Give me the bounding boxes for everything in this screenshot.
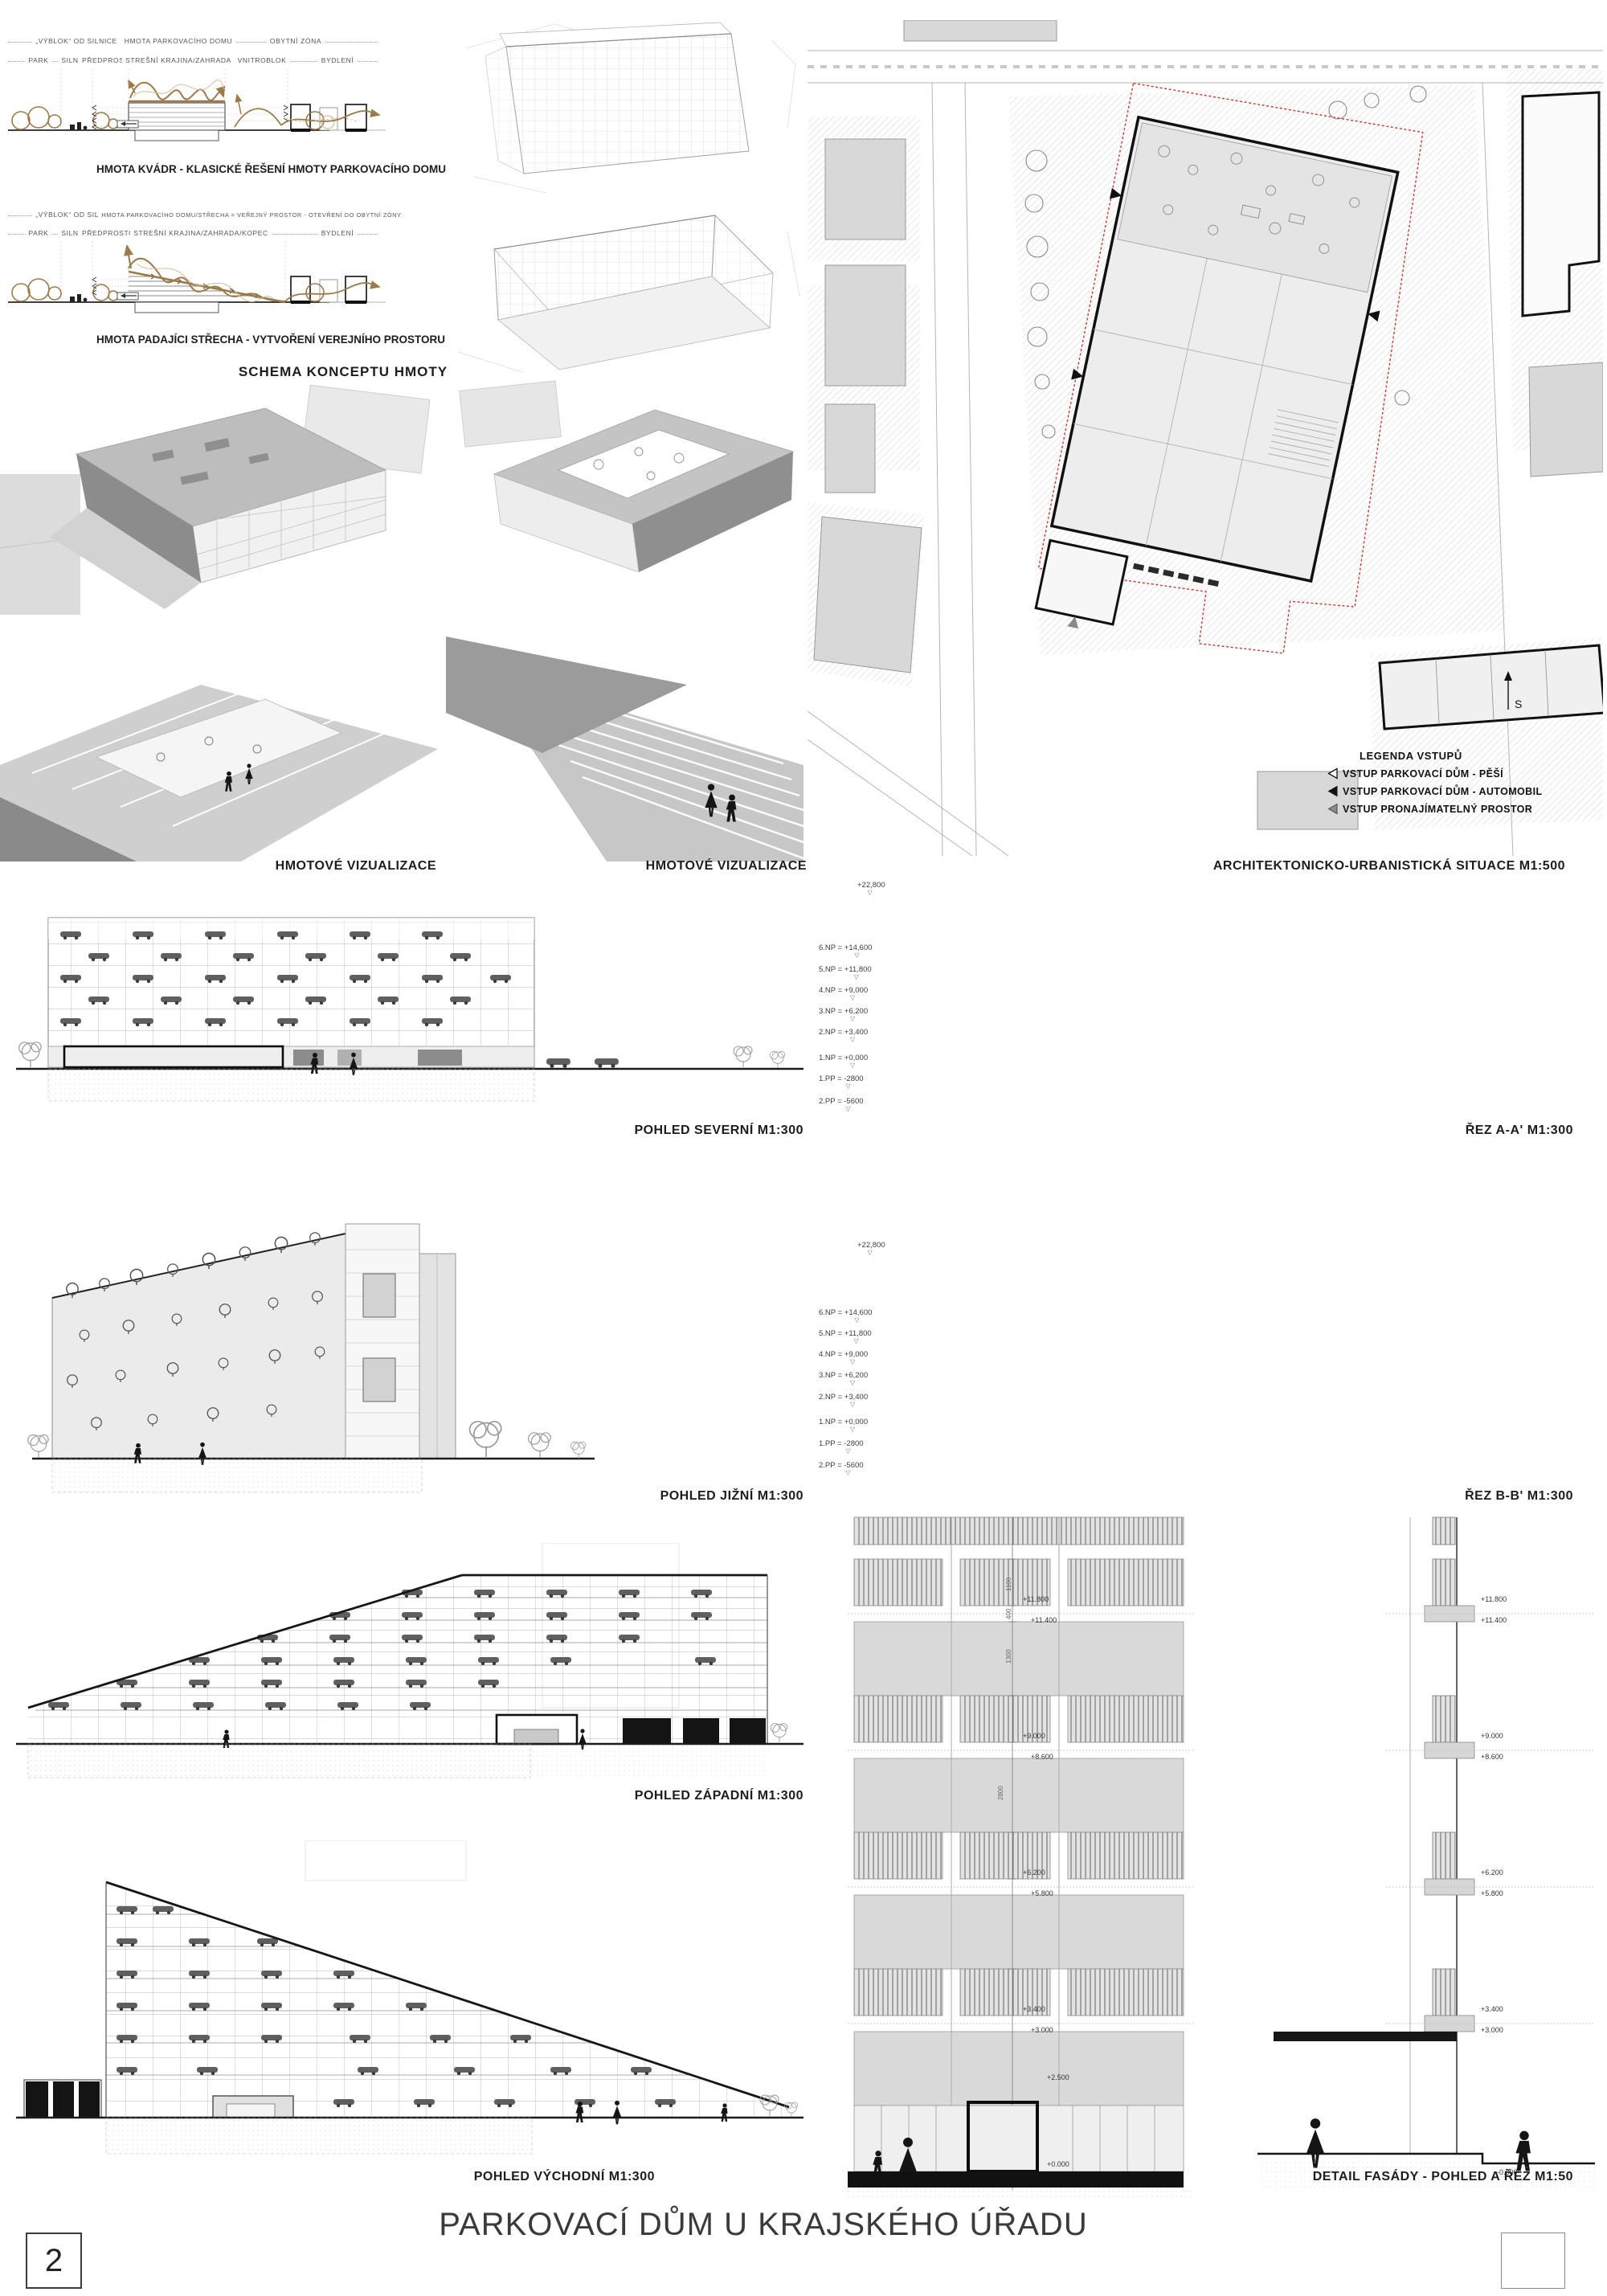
detail-section-drawing: [1241, 1511, 1603, 2202]
facade-dim-label: 400: [1005, 1609, 1012, 1619]
detail-section-level-label: +3.400: [1481, 2005, 1503, 2013]
entry-pedestrian-triangle-icon: [1327, 767, 1338, 780]
legend-item: VSTUP PRONAJÍMATELNÝ PROSTOR: [1327, 803, 1593, 815]
section-bb-drawing: [808, 1234, 1603, 1487]
detail-section-level-label: +8.600: [1481, 1753, 1503, 1761]
detail-facade-panel: +11.800 +11.400 +9.000 +8.600 +6.200 +5.…: [848, 1511, 1193, 2202]
concept-diagram-1: „VÝBLOK“ OD SILNICE HMOTA PARKOVACÍHO DO…: [0, 0, 450, 185]
siteplan-legend: LEGENDA VSTUPŮ VSTUP PARKOVACÍ DŮM - PĚŠ…: [1327, 750, 1593, 815]
caption-elevation-west: POHLED ZÁPADNÍ M1:300: [450, 1789, 803, 1803]
level-label: 5.NP = +11,800▽: [819, 966, 872, 981]
facade-dim-label: 2800: [997, 1786, 1004, 1800]
level-label: 4.NP = +9,000▽: [819, 987, 868, 1002]
legend-item: VSTUP PARKOVACÍ DŮM - PĚŠÍ: [1327, 767, 1593, 780]
level-label: 2.PP = -5600▽: [819, 1462, 864, 1477]
massing-render: [0, 636, 438, 862]
level-label: 2.NP = +3,400▽: [819, 1394, 868, 1409]
detail-facade-drawing: [848, 1511, 1193, 2202]
massing-visualization-3: [0, 636, 438, 862]
facade-level-label: +3.000: [1031, 2026, 1053, 2034]
zone-label: STREŠNÍ KRAJINA/ZAHRADA: [122, 56, 235, 64]
elevation-south-drawing: [16, 1177, 803, 1499]
entry-rentable-triangle-icon: [1327, 803, 1338, 815]
level-label: 4.NP = +9,000▽: [819, 1351, 868, 1366]
detail-section-level-label: +5.800: [1481, 1889, 1503, 1897]
siteplan-drawing: S: [808, 20, 1603, 856]
facade-level-label: +6.200: [1023, 1868, 1045, 1876]
massing-render: [446, 636, 803, 862]
elevation-north-drawing: [16, 900, 803, 1117]
legend-item-label: VSTUP PARKOVACÍ DŮM - AUTOMOBIL: [1343, 786, 1543, 797]
concept-caption-1: HMOTA KVÁDR - KLASICKÉ ŘEŠENÍ HMOTY PARK…: [96, 163, 418, 175]
elevation-east-drawing: [16, 1840, 803, 2178]
wireframe-axonometric-1: [450, 16, 803, 197]
concept-sketch-1: [8, 69, 386, 153]
caption-section-aa: ŘEZ A-A' M1:300: [1220, 1123, 1573, 1138]
level-label: 3.NP = +6,200▽: [819, 1008, 868, 1023]
facade-dim-label: 1300: [1005, 1649, 1012, 1664]
detail-section-level-label: +11.800: [1481, 1595, 1507, 1603]
elevation-north-panel: [16, 900, 803, 1117]
zone-label: VNITROBLOK: [235, 56, 290, 64]
detail-section-level-label: +11.400: [1481, 1616, 1507, 1624]
legend-item-label: VSTUP PRONAJÍMATELNÝ PROSTOR: [1343, 804, 1532, 815]
massing-render: [446, 378, 803, 633]
zone-label: PARK: [26, 56, 52, 64]
massing-visualization-1: [0, 378, 438, 633]
wireframe-axonometric-2: [450, 199, 803, 378]
caption-visualization-left: HMOTOVÉ VIZUALIZACE: [83, 859, 436, 874]
caption-elevation-east: POHLED VÝCHODNÍ M1:300: [301, 2170, 655, 2184]
detail-section-level-label: +9.000: [1481, 1732, 1503, 1740]
level-label: 3.NP = +6,200▽: [819, 1372, 868, 1387]
facade-level-label: +3.400: [1023, 2005, 1045, 2013]
section-aa-panel: +22,800▽ 6.NP = +14,600▽ 5.NP = +11,800▽…: [808, 880, 1603, 1121]
legend-item-label: VSTUP PARKOVACÍ DŮM - PĚŠÍ: [1343, 768, 1503, 780]
massing-render: [0, 378, 438, 633]
north-arrow-label: S: [1515, 698, 1522, 710]
zone-label: BYDLENÍ: [318, 56, 358, 64]
concept-diagram-2: „VÝBLOK“ OD SILNICE HMOTA PARKOVACÍHO DO…: [0, 185, 450, 358]
zone-label: BYDLENÍ: [318, 229, 358, 237]
caption-siteplan: ARCHITEKTONICKO-URBANISTICKÁ SITUACE M1:…: [1212, 859, 1565, 874]
wireframe-drawing: [450, 16, 803, 197]
level-label: 1.NP = +0,000▽: [819, 1418, 868, 1434]
section-bb-panel: +22,800▽ 6.NP = +14,600▽ 5.NP = +11,800▽…: [808, 1234, 1603, 1487]
elevation-west-panel: [16, 1543, 803, 1800]
zone-label: PARK: [26, 229, 52, 237]
facade-level-label: +5.800: [1031, 1889, 1053, 1897]
level-label: 1.PP = -2800▽: [819, 1075, 864, 1091]
facade-level-label: +11.400: [1031, 1616, 1057, 1624]
facade-level-label: +2.500: [1047, 2073, 1069, 2081]
wireframe-drawing: [450, 199, 803, 378]
zone-label: HMOTA PARKOVACÍHO DOMU/STŘECHA = VEŘEJNÝ…: [98, 211, 404, 219]
level-label: 1.NP = +0,000▽: [819, 1054, 868, 1070]
page-title: PARKOVACÍ DŮM U KRAJSKÉHO ÚŘADU: [362, 2207, 1165, 2243]
entry-car-triangle-icon: [1327, 785, 1338, 797]
caption-visualization-right: HMOTOVÉ VIZUALIZACE: [453, 859, 807, 874]
caption-elevation-north: POHLED SEVERNÍ M1:300: [450, 1123, 803, 1138]
corner-box: [1501, 2233, 1565, 2289]
zone-label: OBYTNÍ ZÓNA: [267, 37, 325, 45]
elevation-west-drawing: [16, 1543, 803, 1800]
legend-title: LEGENDA VSTUPŮ: [1360, 750, 1593, 762]
level-label: +22,800▽: [857, 882, 885, 897]
facade-dim-label: 1100: [1005, 1578, 1012, 1591]
section-aa-drawing: [808, 880, 1603, 1121]
massing-visualization-4: [446, 636, 803, 862]
facade-level-label: +8.600: [1031, 1753, 1053, 1761]
elevation-south-panel: [16, 1177, 803, 1499]
zone-label: „VÝBLOK“ OD SILNICE: [32, 37, 121, 45]
zone-label: STREŠNÍ KRAJINA/ZAHRADA/KOPEC: [130, 229, 272, 237]
level-label: 5.NP = +11,800▽: [819, 1330, 872, 1345]
level-label: +22,800▽: [857, 1242, 885, 1257]
level-label: 1.PP = -2800▽: [819, 1440, 864, 1455]
level-label: 6.NP = +14,600▽: [819, 944, 872, 960]
facade-level-label: +9.000: [1023, 1732, 1045, 1740]
massing-visualization-2: [446, 378, 803, 633]
elevation-east-panel: [16, 1840, 803, 2178]
level-label: 6.NP = +14,600▽: [819, 1309, 872, 1324]
level-label: 2.NP = +3,400▽: [819, 1029, 868, 1044]
facade-level-label: +11.800: [1023, 1595, 1049, 1603]
detail-section-level-label: +6.200: [1481, 1868, 1503, 1876]
presentation-board: „VÝBLOK“ OD SILNICE HMOTA PARKOVACÍHO DO…: [0, 0, 1607, 2296]
concept-sketch-2: [8, 241, 386, 325]
caption-section-bb: ŘEZ B-B' M1:300: [1220, 1489, 1573, 1504]
detail-section-panel: +11.800 +11.400 +9.000 +8.600 +6.200 +5.…: [1241, 1511, 1603, 2202]
legend-item: VSTUP PARKOVACÍ DŮM - AUTOMOBIL: [1327, 785, 1593, 797]
caption-detail: DETAIL FASÁDY - POHLED A ŘEZ M1:50: [1220, 2170, 1573, 2184]
detail-section-level-label: +3.000: [1481, 2026, 1503, 2034]
zone-label: HMOTA PARKOVACÍHO DOMU: [121, 37, 236, 45]
caption-elevation-south: POHLED JIŽNÍ M1:300: [450, 1489, 803, 1504]
concept-caption-2: HMOTA PADAJÍCI STŘECHA - VYTVOŘENÍ VEREJ…: [96, 334, 418, 346]
board-number: 2: [26, 2233, 82, 2289]
level-label: 2.PP = -5600▽: [819, 1098, 864, 1113]
facade-level-label: +0.000: [1047, 2160, 1069, 2168]
siteplan-panel: S: [808, 20, 1603, 856]
